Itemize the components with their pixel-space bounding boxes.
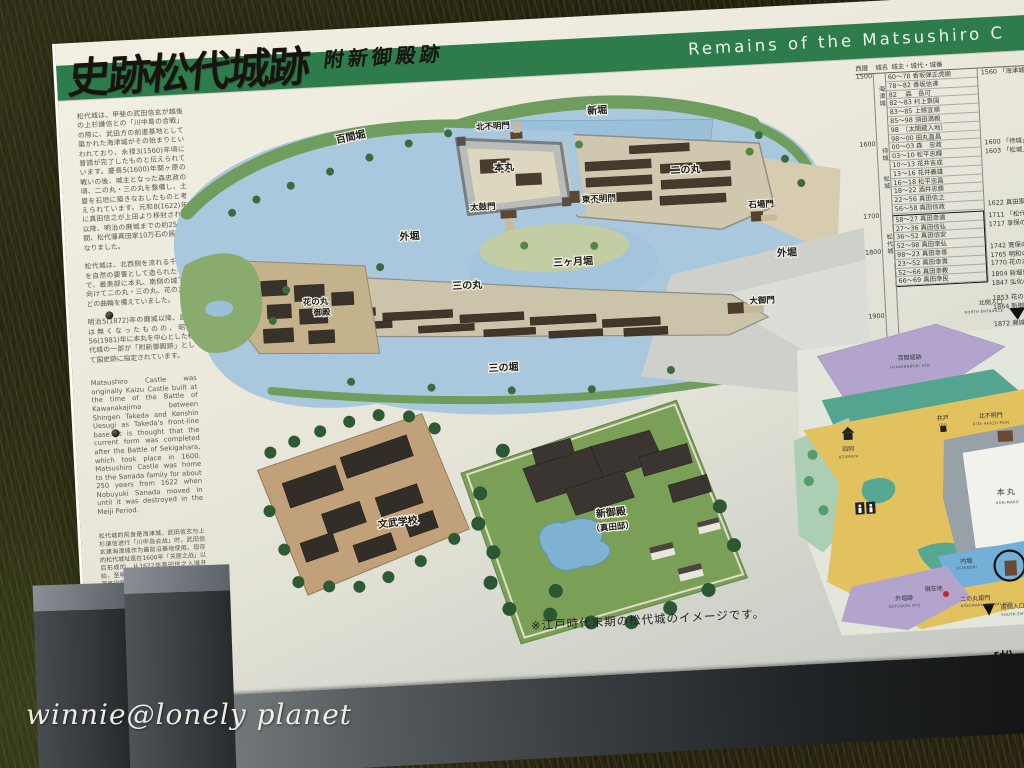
support-post-left [33, 582, 132, 768]
map-label-ishibamon: 石場門 [747, 198, 774, 210]
guide-label-north-entrance-jp: 北側入口 [979, 298, 1003, 307]
guide-label-sotobori-jp: 外堀跡 [895, 594, 913, 603]
castle-name: 海津城 [876, 85, 886, 107]
map-label-kita-akazumon: 北不明門 [476, 120, 511, 133]
kita-akazumon-gate [998, 430, 1014, 442]
chron-header-castle: 城名 [875, 62, 891, 72]
matsushiro-era-box: 58〜27 真田幸道 27〜36 真田信弘 36〜52 真田信安 52〜98 真… [892, 210, 988, 287]
guide-label-minamimon-jp: 二の丸南門 [960, 594, 990, 604]
watermark: winnie@lonely planet [26, 698, 352, 731]
post-front-face [34, 608, 132, 768]
map-label-sotobori-east: 外堀 [776, 245, 798, 259]
guide-label-current-location: 現在地 [924, 584, 942, 593]
ruler-column: 60〜78 香坂弾正虎綱 78〜82 香坂信達 82 森 長可 82〜83 村上… [886, 69, 989, 288]
map-label-sotobori-west: 外堀 [398, 229, 420, 243]
post-top-face [123, 564, 230, 594]
guide-label-hyakkenbori-jp: 百間堀跡 [897, 353, 921, 362]
era-label: 1500 [856, 72, 873, 81]
guide-label-kita-akazumon-jp: 北不明門 [979, 411, 1003, 420]
map-label-taikomon: 太鼓門 [469, 201, 496, 213]
map-label-shinbori: 新堀 [587, 103, 608, 117]
photo-of-sign: { "photo": { "watermark": "winnie@lonely… [0, 0, 1024, 768]
north-entrance-marker [1009, 307, 1024, 320]
castle-overview-map: 新堀 百間堀 北不明門 本丸 太鼓門 東不明門 二の丸 石場門 外堀 外堀 三の… [156, 59, 886, 452]
taikomon-gate [1004, 560, 1017, 576]
castle-name: 松代城 [884, 233, 894, 255]
era-label: 1600 [859, 140, 876, 149]
post-front-face [124, 590, 237, 768]
castle-name: 松城 [881, 175, 891, 190]
guide-map: 北側入口 NORTH ENTRANCE 百間堀跡 HYAKKENBORI ATO… [785, 292, 1024, 641]
chron-header-lord: 城主・城代・城番 [891, 59, 943, 71]
map-label-higashi-akazumon: 東不明門 [582, 193, 617, 206]
support-post-right [123, 564, 236, 768]
guide-label-south-entrance-jp: 南側入口 [1001, 602, 1024, 611]
map-label-hananomaru-1: 花の丸 [303, 296, 330, 308]
post-top-face [33, 582, 126, 611]
era-label: 1800 [865, 248, 882, 257]
map-label-hananomaru-2: 御殿 [312, 307, 331, 319]
guide-label-ido-jp: 井戸 [937, 414, 949, 423]
guide-label-north-entrance-en: NORTH ENTRANCE [964, 309, 1003, 315]
map-label-oogomon: 大御門 [749, 295, 775, 307]
map-label-honmaru: 本丸 [494, 160, 516, 174]
guide-label-azumaya-jp: 四阿 [842, 445, 854, 454]
castle-name: 待城 [880, 147, 890, 162]
guide-label-ido-en: IDO [939, 423, 947, 427]
era-label: 1700 [863, 212, 880, 221]
guide-label-uchibori-jp: 内堀 [960, 557, 972, 566]
guide-label-honmaru-jp: 本丸 [996, 486, 1016, 497]
event-entry: 1622 真田家が上田より [987, 195, 1024, 208]
